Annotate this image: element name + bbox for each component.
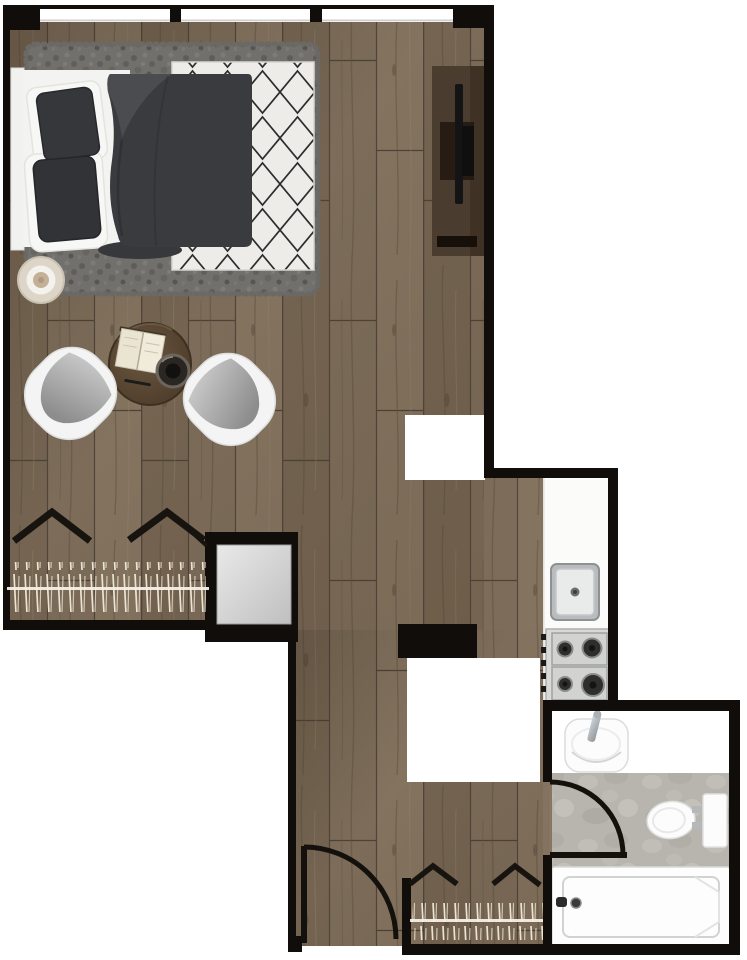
window-mullion-1 [170,5,181,22]
left-wall [3,5,10,630]
dark-pillow-bottom [33,155,102,242]
kitchen-top-wall [484,468,618,478]
headboard [11,68,24,250]
wardrobe-mirror [217,545,291,624]
bathroom-door-leaf [550,852,627,858]
bathroom [552,710,740,955]
tub-faucet [556,897,567,907]
radiator-line-left [7,587,209,590]
bathtub [552,867,730,947]
bathroom-right-wall [729,700,740,955]
console-items [437,236,477,247]
top-left-corner-wall [8,5,40,30]
decor-bowl [157,355,189,387]
side-table-round [18,257,64,303]
utility-void [407,658,540,782]
top-wall-outer-line [3,5,494,9]
wall-chase-block [398,624,477,658]
bathroom-top-wall [543,700,740,711]
window-sill-line [40,20,453,22]
tv-console [432,66,485,256]
hall-left-wall [288,630,296,942]
bathroom-left-wall-lower [543,855,552,950]
toilet-hinge [692,806,702,813]
window-mullion-2 [310,5,322,22]
floor-plan [0,0,747,960]
kitchen [541,478,610,704]
tv-bracket [462,126,474,176]
floor-plan-page [0,0,747,960]
tub-drain [571,898,581,908]
kitchen-sink [551,564,599,620]
bottom-left-wall [3,620,216,630]
radiator-line-right [410,919,543,922]
bathroom-left-wall-upper [543,711,552,782]
bed [11,68,252,259]
dark-pillow-top [36,86,101,161]
tv [455,84,463,204]
kitchen-right-wall [608,470,618,710]
entry-wall-stub-left [288,936,302,952]
toilet-hinge [692,822,702,829]
entry-wall-stub-right [402,878,411,955]
bottom-wall [402,944,740,955]
exterior-notch [405,415,485,480]
toilet-tank [703,794,727,847]
gas-hob [541,629,610,702]
right-wall-upper [484,5,494,478]
entry-door-leaf [301,846,307,943]
